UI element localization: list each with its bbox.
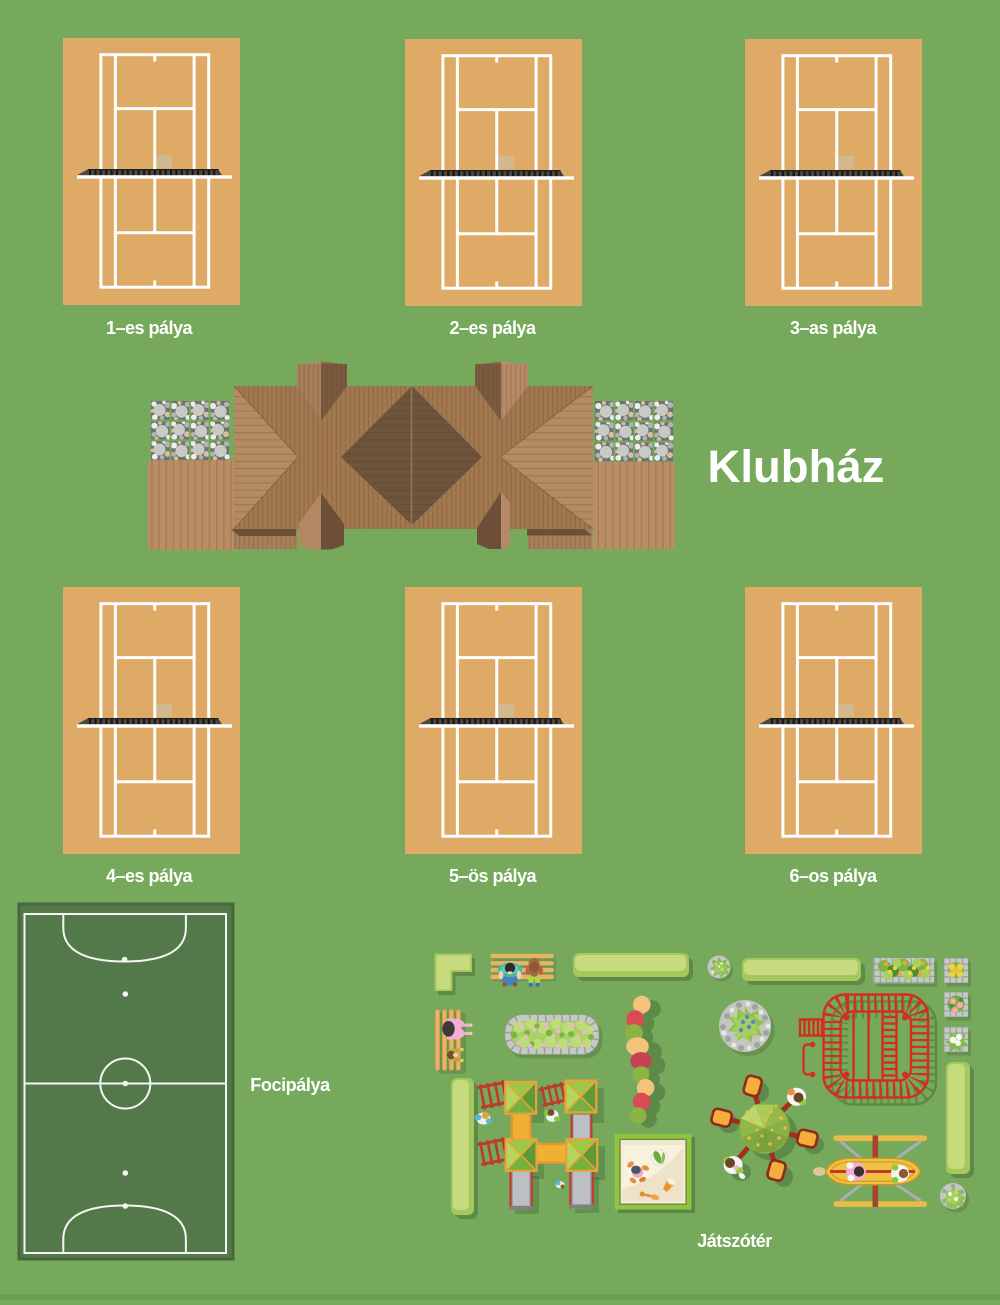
svg-text:Klubház: Klubház — [708, 441, 885, 492]
svg-text:1–es pálya: 1–es pálya — [106, 318, 194, 338]
svg-text:Focipálya: Focipálya — [250, 1075, 331, 1095]
svg-text:3–as pálya: 3–as pálya — [790, 318, 878, 338]
svg-text:4–es pálya: 4–es pálya — [106, 866, 194, 886]
svg-text:2–es pálya: 2–es pálya — [449, 318, 537, 338]
svg-text:6–os pálya: 6–os pálya — [789, 866, 878, 886]
svg-text:5–ös pálya: 5–ös pálya — [449, 866, 538, 886]
svg-text:Játszótér: Játszótér — [697, 1231, 772, 1251]
